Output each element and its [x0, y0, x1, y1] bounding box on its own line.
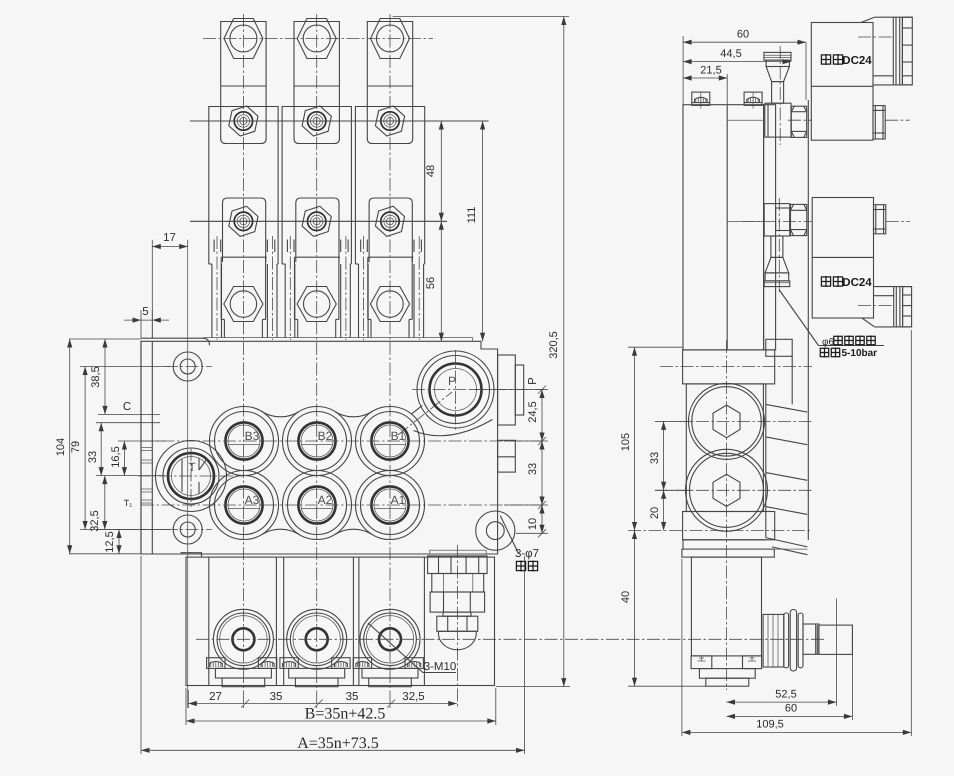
svg-text:40: 40: [620, 591, 632, 603]
svg-text:320,5: 320,5: [548, 331, 560, 359]
svg-text:52,5: 52,5: [775, 689, 796, 701]
svg-text:60: 60: [737, 29, 749, 41]
svg-text:35: 35: [270, 691, 283, 703]
svg-text:φ6: φ6: [822, 337, 834, 348]
svg-text:P: P: [448, 374, 456, 388]
svg-text:48: 48: [425, 165, 437, 177]
svg-text:35: 35: [346, 691, 359, 703]
svg-text:12,5: 12,5: [104, 531, 116, 552]
svg-text:T: T: [188, 460, 196, 474]
svg-text:17: 17: [163, 232, 176, 244]
svg-text:10: 10: [527, 518, 539, 530]
svg-text:32,5: 32,5: [402, 691, 424, 703]
svg-text:33: 33: [87, 451, 99, 463]
svg-text:27: 27: [209, 691, 222, 703]
svg-text:P: P: [527, 377, 539, 385]
svg-text:5-10bar: 5-10bar: [842, 348, 878, 359]
svg-text:33: 33: [649, 452, 661, 464]
svg-text:104: 104: [55, 438, 67, 456]
svg-text:79: 79: [70, 441, 82, 453]
svg-text:38,5: 38,5: [90, 366, 102, 387]
svg-text:21,5: 21,5: [700, 65, 721, 77]
svg-text:B=35n+42.5: B=35n+42.5: [305, 706, 386, 723]
svg-text:33: 33: [527, 463, 539, 475]
svg-text:44,5: 44,5: [720, 48, 741, 60]
svg-text:C: C: [123, 401, 131, 413]
svg-text:5: 5: [142, 306, 148, 318]
svg-text:3-φ7: 3-φ7: [515, 548, 539, 560]
svg-text:105: 105: [620, 433, 632, 451]
svg-text:DC24: DC24: [842, 277, 872, 289]
svg-text:T₁: T₁: [124, 498, 133, 508]
svg-text:16,5: 16,5: [110, 446, 122, 467]
svg-text:109,5: 109,5: [756, 719, 784, 731]
svg-text:3-M10: 3-M10: [424, 661, 457, 673]
svg-text:56: 56: [425, 277, 437, 289]
svg-text:32,5: 32,5: [89, 510, 101, 531]
svg-text:DC24: DC24: [842, 55, 872, 67]
svg-text:A=35n+73.5: A=35n+73.5: [297, 735, 379, 752]
svg-text:111: 111: [466, 207, 478, 224]
svg-text:60: 60: [785, 703, 797, 715]
svg-text:24,5: 24,5: [527, 401, 539, 422]
svg-text:20: 20: [649, 507, 661, 519]
